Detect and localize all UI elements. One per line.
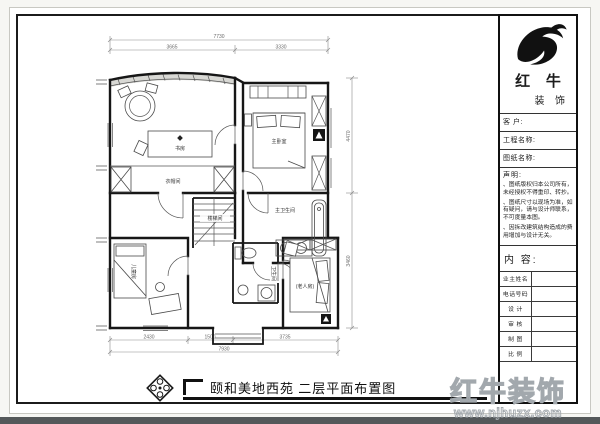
caption-bracket bbox=[183, 379, 203, 395]
statement-item: 、图纸版权归本公司所有，未经授权不得重印、转抄。 bbox=[503, 182, 573, 198]
field-customer: 客 户: bbox=[500, 114, 576, 132]
statement-title: 声明: bbox=[503, 171, 573, 180]
row-drafting: 制 图 bbox=[500, 332, 576, 347]
room-label-cloakroom: 衣帽间 bbox=[165, 178, 180, 185]
svg-text:3460: 3460 bbox=[346, 255, 352, 266]
row-owner-name: 业主姓名 bbox=[500, 272, 576, 287]
dimension-right: 4470 3460 bbox=[346, 76, 358, 330]
row-review: 审 核 bbox=[500, 317, 576, 332]
room-label-stairwell: 楼梯间 bbox=[207, 215, 222, 222]
svg-text:4470: 4470 bbox=[346, 130, 352, 141]
statement-item: 、图纸尺寸以现场为准，如有疑问，请与设计师联系，不可度量本图。 bbox=[503, 200, 573, 223]
row-design: 设 计 bbox=[500, 302, 576, 317]
bathroom-fixtures: 卫生间 bbox=[235, 247, 277, 301]
svg-text:7730: 7730 bbox=[213, 34, 224, 40]
section-marker-icon bbox=[321, 314, 331, 324]
room-label-elder-room: (老人房) bbox=[296, 283, 315, 290]
photo-bottom-edge bbox=[0, 417, 600, 424]
svg-text:3330: 3330 bbox=[275, 45, 286, 51]
field-drawing-name: 图纸名称: bbox=[500, 150, 576, 168]
content-label: 内 容: bbox=[500, 246, 576, 272]
info-fields: 客 户: 工程名称: 图纸名称: bbox=[500, 113, 576, 168]
kids-room-furniture: 儿童房 bbox=[114, 244, 181, 314]
svg-text:3735: 3735 bbox=[279, 335, 290, 341]
svg-text:3665: 3665 bbox=[166, 45, 177, 51]
brand-name: 红 牛 bbox=[500, 74, 576, 91]
room-label-kids-room: 儿童房 bbox=[130, 264, 137, 279]
axis-ticks bbox=[96, 80, 107, 330]
drawing-title: 颐和美地西苑 二层平面布置图 bbox=[210, 378, 396, 397]
balcony-band bbox=[110, 77, 235, 84]
room-label-study: 书房 bbox=[175, 145, 185, 152]
bull-logo-icon bbox=[500, 16, 576, 74]
caption-underline bbox=[183, 397, 487, 400]
master-bedroom-furniture: 主卧室 bbox=[245, 86, 327, 190]
floor-plan: 7730 3665 3330 2430 1500 3735 7930 44 bbox=[88, 28, 398, 378]
svg-text:2430: 2430 bbox=[143, 335, 154, 341]
svg-text:1500: 1500 bbox=[204, 335, 215, 341]
room-label-bathroom: 卫生间 bbox=[270, 266, 277, 281]
row-phone: 电话号码 bbox=[500, 287, 576, 302]
elder-room-furniture: (老人房) bbox=[284, 239, 336, 324]
dimension-top: 7730 3665 3330 bbox=[108, 34, 330, 54]
row-scale: 比 例 bbox=[500, 347, 576, 362]
room-label-master-bathroom: 主卫生间 bbox=[275, 207, 295, 214]
svg-text:7930: 7930 bbox=[218, 347, 229, 353]
brand-subname: 装 饰 bbox=[500, 92, 576, 107]
study-furniture: 书房 bbox=[118, 83, 212, 157]
room-label-master-bedroom: 主卧室 bbox=[271, 138, 286, 145]
diamond-stamp-icon bbox=[146, 374, 174, 407]
drawing-sheet-photo: 7730 3665 3330 2430 1500 3735 7930 44 bbox=[0, 0, 600, 424]
statement-item: 、因拆改建筑结构造成的费用增加与设计无关。 bbox=[503, 225, 573, 241]
section-marker-icon bbox=[313, 129, 325, 141]
title-block: 红 牛 装 饰 客 户: 工程名称: 图纸名称: 声明: 、图纸版权归本公司所有… bbox=[498, 14, 578, 404]
field-project-name: 工程名称: bbox=[500, 132, 576, 150]
statement-section: 声明: 、图纸版权归本公司所有，未经授权不得重印、转抄。 、图纸尺寸以现场为准，… bbox=[500, 168, 576, 246]
